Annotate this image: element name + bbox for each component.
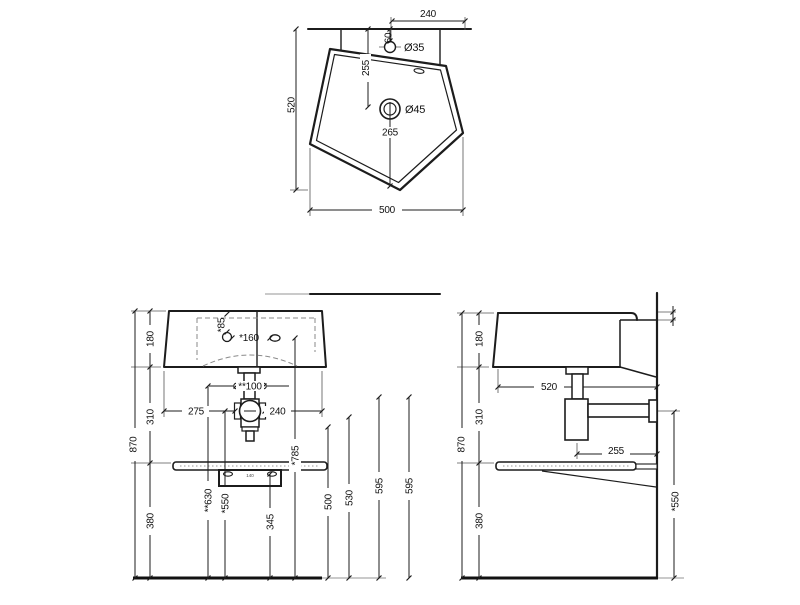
dim-label-255: 255: [361, 59, 372, 76]
dim-label-60: 60: [384, 32, 395, 43]
dimension-lines: [462, 306, 674, 578]
basin-underside: [620, 367, 656, 377]
dim-label-dia35: Ø35: [404, 42, 424, 54]
dim-label-85: *85: [217, 317, 228, 332]
washbasin-technical-drawing: 240 60 Ø35 255 Ø45 265 520 500 140: [0, 0, 800, 600]
vertical-dimension-lines: [208, 338, 409, 578]
dim-label-530: 530: [345, 489, 356, 506]
dim-label-500: 500: [324, 493, 335, 510]
dim-label-380: 380: [146, 512, 157, 529]
dim-label-100: **100: [238, 382, 262, 393]
dim-label-240: 240: [269, 407, 286, 418]
basin-body-profile: [493, 313, 620, 367]
dim-label-dia45: Ø45: [405, 104, 425, 116]
dim-label-595b: 595: [405, 477, 416, 494]
front-view: 140 180 *85 *160 **100 275 240 310 870 *…: [127, 294, 440, 581]
dim-label-520: 520: [541, 382, 558, 393]
dim-label-870: 870: [129, 436, 140, 453]
dim-label-275: 275: [188, 407, 205, 418]
dim-label-870: 870: [457, 436, 468, 453]
dim-label-180: 180: [475, 330, 486, 347]
shelf-wall-mount: [636, 464, 657, 469]
dim-label-550: *550: [671, 491, 682, 511]
wall-flange: [649, 400, 657, 422]
basin-rear-block: [620, 320, 657, 367]
bracket-label: 140: [246, 473, 254, 478]
dim-label-520: 520: [287, 96, 298, 113]
dim-label-180: 180: [146, 330, 157, 347]
dim-label-255: 255: [608, 446, 625, 457]
dim-label-380: 380: [475, 512, 486, 529]
dim-label-595a: 595: [375, 477, 386, 494]
basin-rim-profile: [498, 313, 637, 320]
dim-label-310: 310: [146, 408, 157, 425]
side-view: 180 520 310 870 255 380 *550: [455, 293, 684, 581]
dim-label-160: *160: [239, 333, 259, 344]
waste-fitting-side: [566, 367, 588, 374]
shelf-support: [542, 471, 656, 487]
drawing-canvas: 240 60 Ø35 255 Ø45 265 520 500 140: [0, 0, 800, 600]
dim-label-345: 345: [266, 513, 277, 530]
dim-label-550: *550: [221, 493, 232, 513]
trap-tail-pipe: [246, 431, 254, 441]
dim-label-310: 310: [475, 408, 486, 425]
trap-body-side: [565, 399, 588, 440]
dim-label-240: 240: [420, 9, 437, 20]
dim-label-785: *785: [291, 445, 302, 465]
top-view: 240 60 Ø35 255 Ø45 265 520 500: [287, 9, 472, 216]
dim-label-500: 500: [379, 205, 396, 216]
dim-label-630: **630: [204, 488, 215, 512]
dim-label-265: 265: [382, 128, 399, 139]
wall-outlet-pipe: [588, 404, 650, 417]
drain-pipe-side: [572, 374, 583, 399]
waste-fitting: [238, 367, 260, 373]
arrow-ticks: [460, 310, 677, 581]
